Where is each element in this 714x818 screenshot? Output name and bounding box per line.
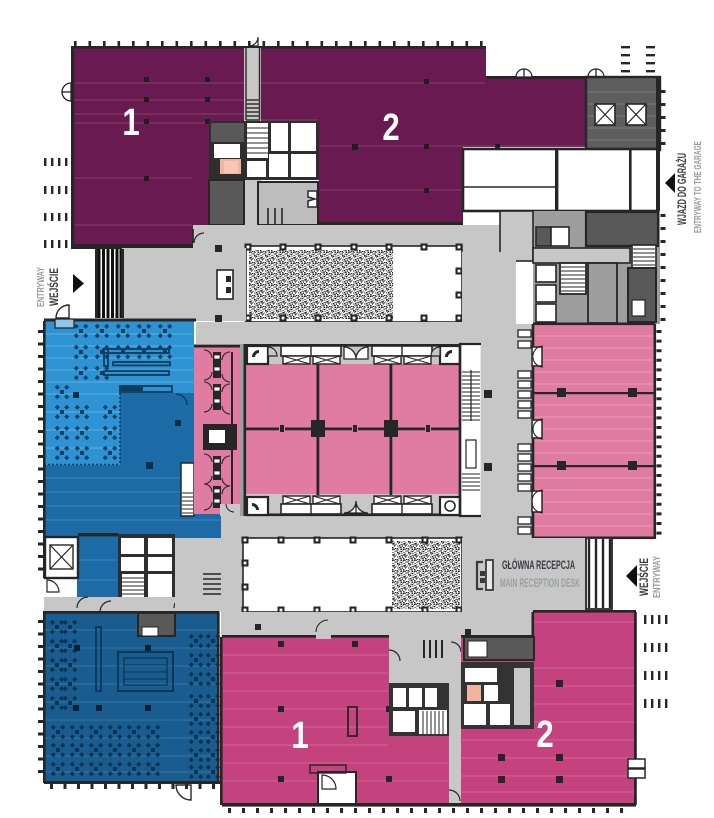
- svg-text:WJAZD DO GARAŻU: WJAZD DO GARAŻU: [674, 153, 689, 225]
- svg-text:ENTRYWAY: ENTRYWAY: [35, 267, 47, 307]
- svg-text:MAIN RECEPTION DESK: MAIN RECEPTION DESK: [500, 576, 580, 590]
- svg-text:GŁÓWNA RECEPCJA: GŁÓWNA RECEPCJA: [502, 557, 575, 572]
- svg-text:ENTRYWAY TO THE GARAGE: ENTRYWAY TO THE GARAGE: [692, 141, 704, 233]
- svg-text:ENTRYWAY: ENTRYWAY: [651, 556, 663, 598]
- svg-text:1: 1: [122, 102, 139, 144]
- svg-text:1: 1: [291, 715, 308, 757]
- svg-text:2: 2: [536, 714, 553, 756]
- svg-text:WEJŚCIE: WEJŚCIE: [636, 558, 651, 596]
- svg-text:WEJŚCIE: WEJŚCIE: [46, 268, 61, 306]
- svg-text:2: 2: [382, 107, 399, 149]
